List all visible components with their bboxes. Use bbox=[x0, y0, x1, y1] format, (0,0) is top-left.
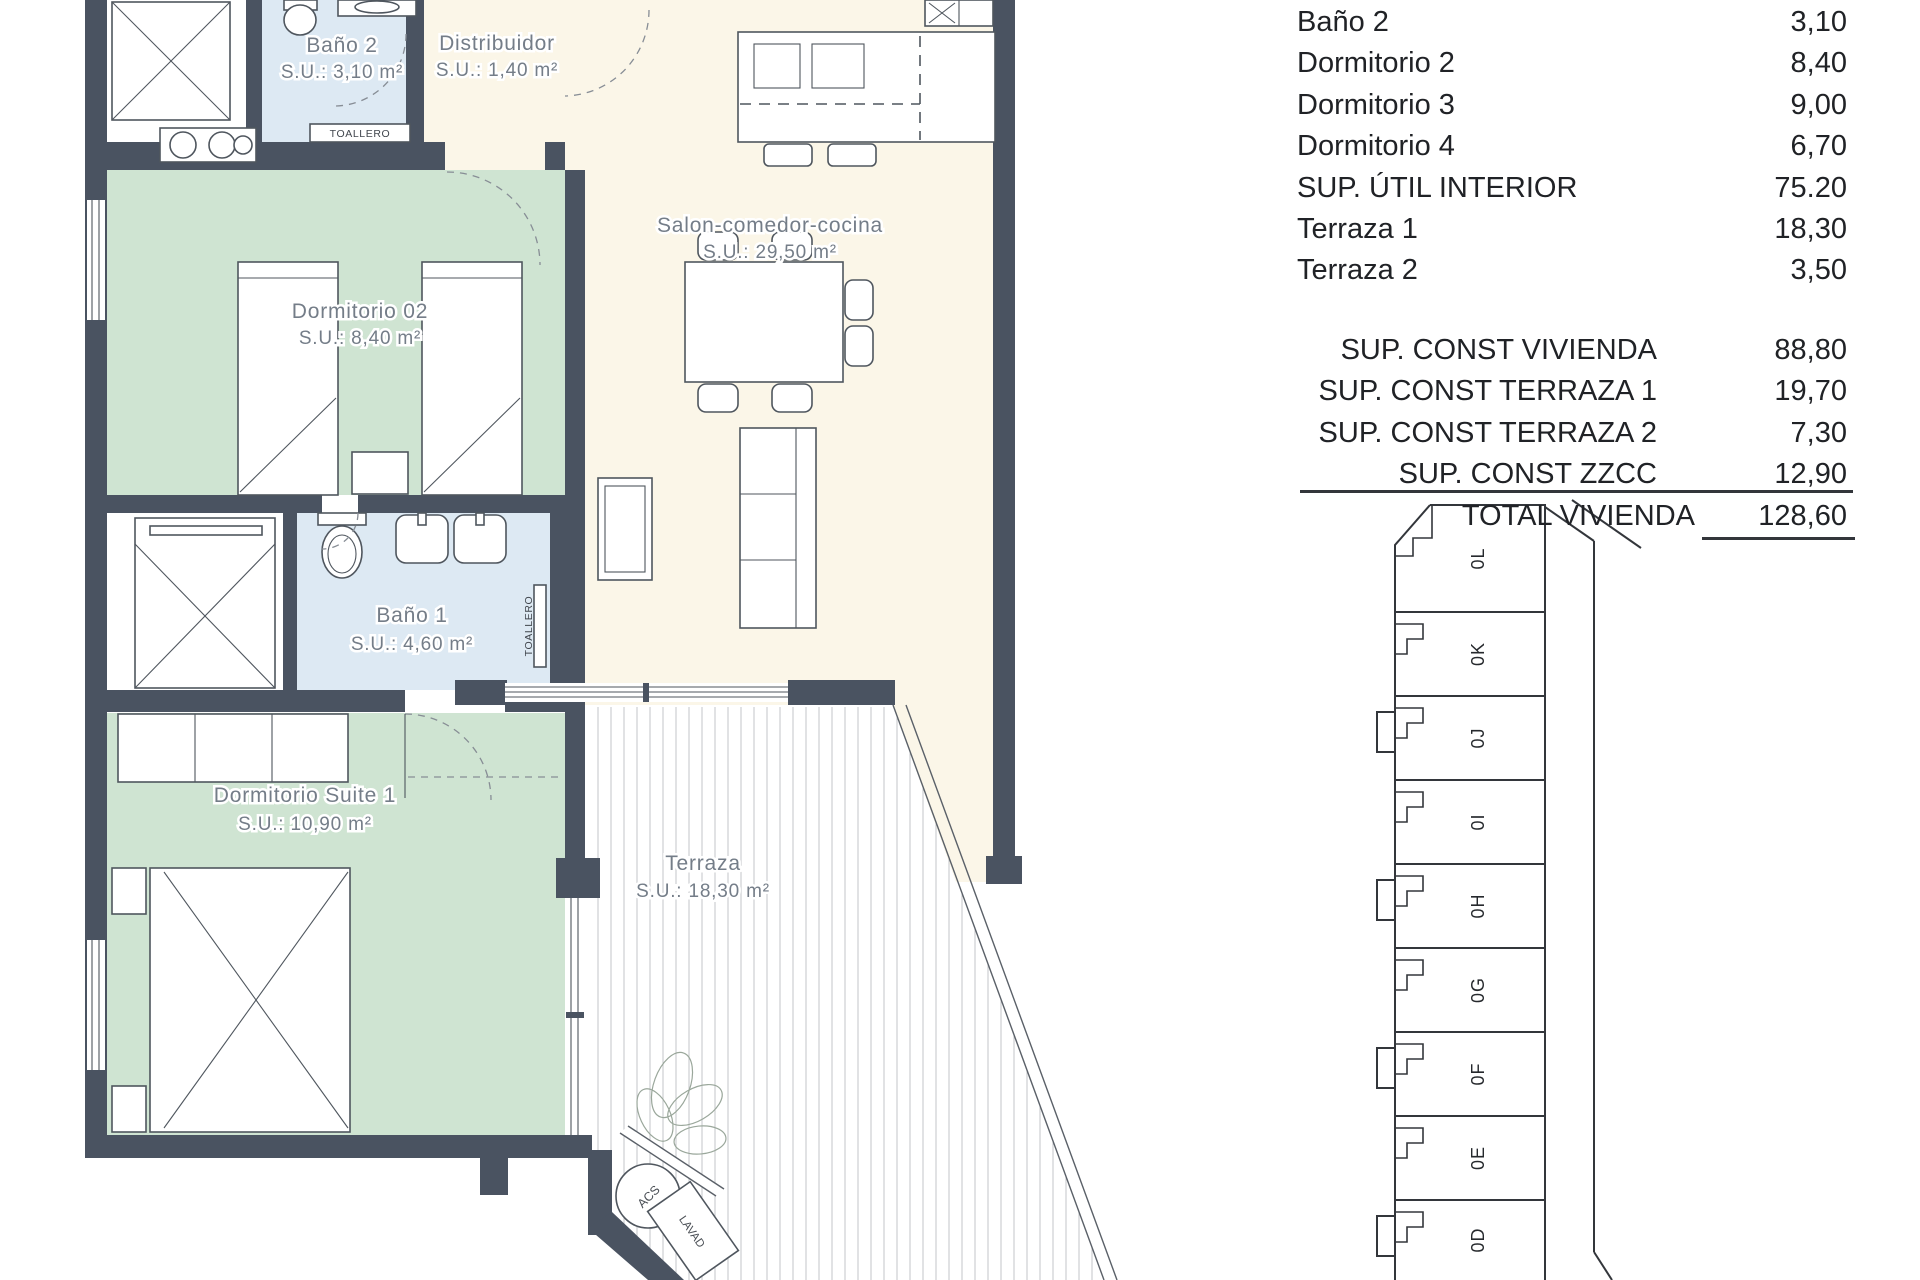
dining-table-icon bbox=[685, 262, 843, 382]
area-value: 7,30 bbox=[1791, 417, 1847, 450]
area-label: Terraza 2 bbox=[1297, 254, 1418, 287]
total-underline bbox=[1702, 537, 1855, 540]
key-plan-unit-label: 0D bbox=[1468, 1227, 1488, 1252]
tap-icon bbox=[476, 513, 484, 525]
area-label: Dormitorio 4 bbox=[1297, 130, 1455, 163]
area-row: TOTAL VIVIENDA128,60 bbox=[1297, 500, 1856, 534]
livingroom-label: Salon-comedor-cocina bbox=[657, 214, 883, 237]
double-bed-icon bbox=[150, 868, 350, 1132]
area-value: 3,50 bbox=[1791, 254, 1847, 287]
key-plan-unit-label: 0I bbox=[1468, 813, 1488, 830]
terrace-label: Terraza bbox=[665, 852, 741, 875]
area-value: 6,70 bbox=[1791, 130, 1847, 163]
area-value: 18,30 bbox=[1774, 213, 1847, 246]
area-value: 75.20 bbox=[1774, 172, 1847, 205]
basin-icon bbox=[209, 132, 235, 158]
area-row: Dormitorio 39,00 bbox=[1297, 89, 1856, 123]
sofa-icon bbox=[740, 428, 816, 628]
area-row: Terraza 23,50 bbox=[1297, 254, 1856, 288]
hall-label: Distribuidor bbox=[439, 32, 555, 55]
key-plan-unit-label: 0E bbox=[1468, 1146, 1488, 1170]
bedroom02-window bbox=[87, 200, 105, 320]
area-label: Dormitorio 3 bbox=[1297, 89, 1455, 122]
toallero-label: TOALLERO bbox=[330, 128, 391, 140]
key-plan-unit-label: 0J bbox=[1468, 727, 1488, 748]
bathroom1-label: Baño 1 bbox=[376, 604, 447, 627]
nightstand-icon bbox=[112, 1086, 146, 1132]
area-row: SUP. CONST TERRAZA 119,70 bbox=[1297, 375, 1856, 409]
single-bed-icon bbox=[238, 262, 338, 495]
key-plan-unit-label: 0H bbox=[1468, 893, 1488, 918]
area-label: SUP. CONST TERRAZA 2 bbox=[1319, 417, 1657, 450]
area-value: 3,10 bbox=[1791, 6, 1847, 39]
area-row: SUP. CONST ZZCC12,90 bbox=[1297, 458, 1856, 492]
sink-icon bbox=[355, 1, 399, 13]
bedroom02-label: Dormitorio 02 bbox=[292, 300, 428, 323]
bathroom2-label: Baño 2 bbox=[306, 34, 377, 57]
hall-floor bbox=[424, 0, 565, 170]
basin-icon bbox=[234, 136, 252, 154]
single-bed-icon bbox=[422, 262, 522, 495]
wardrobe-icon bbox=[135, 518, 275, 688]
area-row: SUP. CONST VIVIENDA88,80 bbox=[1297, 334, 1856, 368]
key-plan-protrusion bbox=[1377, 1216, 1395, 1256]
chair-icon bbox=[772, 384, 812, 412]
chair-icon bbox=[698, 384, 738, 412]
floorplan-page: ACS LAVAD Baño 2 S.U.: 3,10 m² Distribui… bbox=[0, 0, 1920, 1280]
area-value: 9,00 bbox=[1791, 89, 1847, 122]
areas-table: Baño 23,10Dormitorio 28,40Dormitorio 39,… bbox=[1297, 0, 1856, 560]
chair-icon bbox=[845, 326, 873, 366]
kitchen-island bbox=[738, 32, 995, 142]
area-row: SUP. CONST TERRAZA 27,30 bbox=[1297, 417, 1856, 451]
toilet-cistern bbox=[318, 513, 366, 525]
toilet-icon bbox=[284, 5, 316, 35]
area-row: Terraza 118,30 bbox=[1297, 213, 1856, 247]
area-label: Dormitorio 2 bbox=[1297, 47, 1455, 80]
key-plan-protrusion bbox=[1377, 712, 1395, 752]
stool-icon bbox=[764, 144, 812, 166]
area-row: Dormitorio 28,40 bbox=[1297, 47, 1856, 81]
suite-closet bbox=[118, 714, 348, 782]
area-value: 12,90 bbox=[1774, 458, 1847, 491]
stool-icon bbox=[828, 144, 876, 166]
area-label: SUP. CONST VIVIENDA bbox=[1341, 334, 1657, 367]
key-plan-unit-label: 0F bbox=[1468, 1062, 1488, 1085]
area-label: Baño 2 bbox=[1297, 6, 1389, 39]
area-label: SUP. CONST TERRAZA 1 bbox=[1319, 375, 1657, 408]
area-row: SUP. ÚTIL INTERIOR75.20 bbox=[1297, 172, 1856, 206]
suite-area: S.U.: 10,90 m² bbox=[238, 814, 372, 835]
tap-icon bbox=[418, 513, 426, 525]
area-label: SUP. ÚTIL INTERIOR bbox=[1297, 172, 1577, 205]
bedroom02-area: S.U.: 8,40 m² bbox=[299, 328, 421, 349]
key-plan-unit-label: 0G bbox=[1468, 977, 1488, 1003]
terrace-area: S.U.: 18,30 m² bbox=[636, 881, 770, 902]
chair-icon bbox=[845, 280, 873, 320]
area-row: Dormitorio 46,70 bbox=[1297, 130, 1856, 164]
key-plan-unit-label: 0K bbox=[1468, 642, 1488, 666]
livingroom-area: S.U.: 29,50 m² bbox=[703, 242, 837, 263]
area-label: TOTAL VIVIENDA bbox=[1462, 500, 1695, 533]
hall-area: S.U.: 1,40 m² bbox=[436, 60, 558, 81]
area-row: Baño 23,10 bbox=[1297, 6, 1856, 40]
suite-label: Dormitorio Suite 1 bbox=[214, 784, 396, 807]
suite-window bbox=[87, 940, 105, 1070]
key-plan: 0L0K0J0I0H0G0F0E0D bbox=[1377, 500, 1641, 1280]
nightstand-icon bbox=[112, 868, 146, 914]
area-value: 128,60 bbox=[1758, 500, 1847, 533]
key-plan-protrusion bbox=[1377, 880, 1395, 920]
bathroom2-area: S.U.: 3,10 m² bbox=[281, 62, 403, 83]
basin-icon bbox=[170, 132, 196, 158]
tv-sideboard bbox=[598, 478, 652, 580]
toallero-label: TOALLERO bbox=[523, 596, 535, 657]
area-value: 19,70 bbox=[1774, 375, 1847, 408]
area-label: Terraza 1 bbox=[1297, 213, 1418, 246]
key-plan-protrusion bbox=[1377, 1048, 1395, 1088]
wardrobe-shelf bbox=[150, 526, 262, 535]
area-value: 88,80 bbox=[1774, 334, 1847, 367]
bathroom1-area: S.U.: 4,60 m² bbox=[351, 634, 473, 655]
area-label: SUP. CONST ZZCC bbox=[1399, 458, 1657, 491]
area-value: 8,40 bbox=[1791, 47, 1847, 80]
towel-rail bbox=[534, 585, 546, 667]
nightstand-icon bbox=[352, 452, 408, 494]
